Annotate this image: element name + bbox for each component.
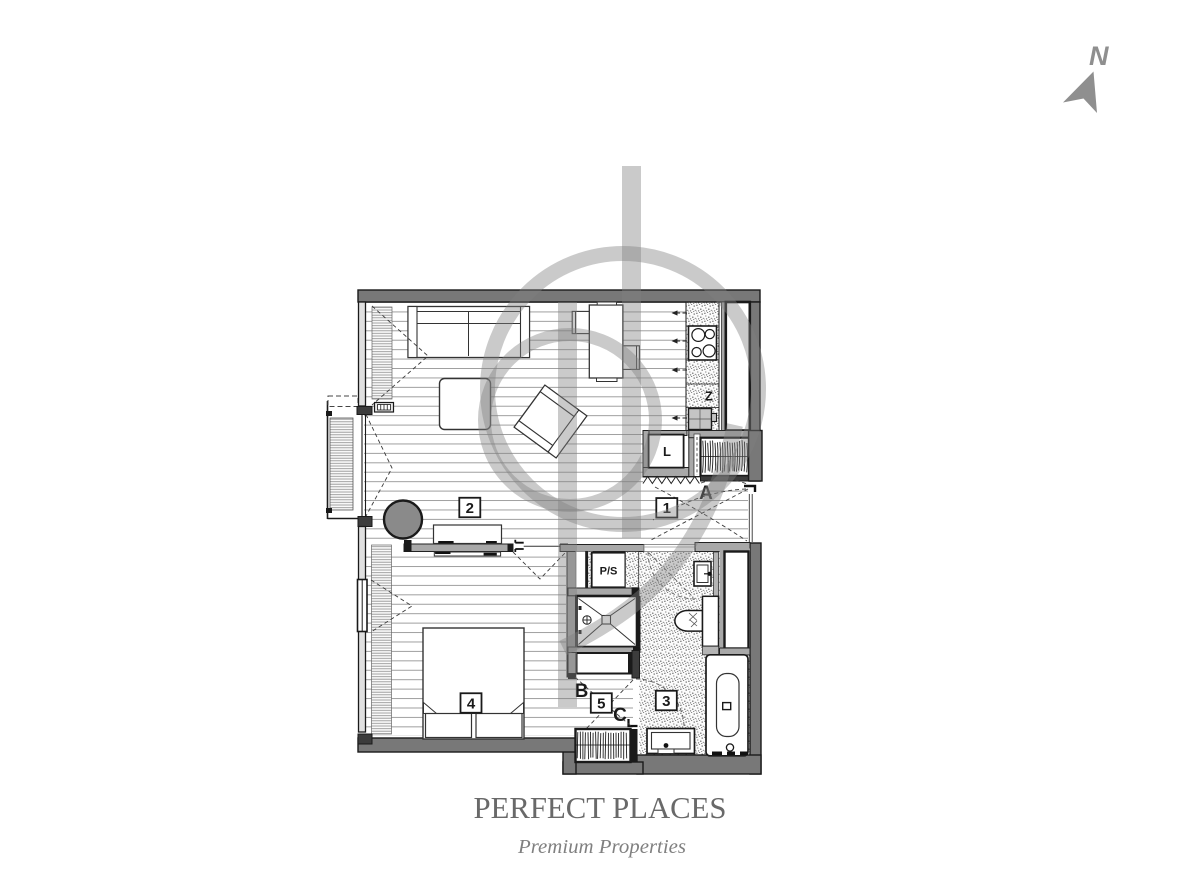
svg-text:5: 5 [597, 695, 605, 712]
svg-text:4: 4 [467, 695, 476, 712]
svg-text:P/S: P/S [600, 566, 618, 578]
svg-text:Premium Properties: Premium Properties [517, 836, 686, 858]
svg-text:C: C [613, 705, 627, 726]
svg-text:PERFECT PLACES: PERFECT PLACES [474, 790, 727, 825]
svg-text:L: L [663, 444, 671, 459]
svg-text:2: 2 [466, 500, 474, 517]
svg-text:N: N [1089, 41, 1109, 71]
svg-text:Z: Z [705, 389, 713, 404]
svg-text:3: 3 [662, 693, 670, 710]
